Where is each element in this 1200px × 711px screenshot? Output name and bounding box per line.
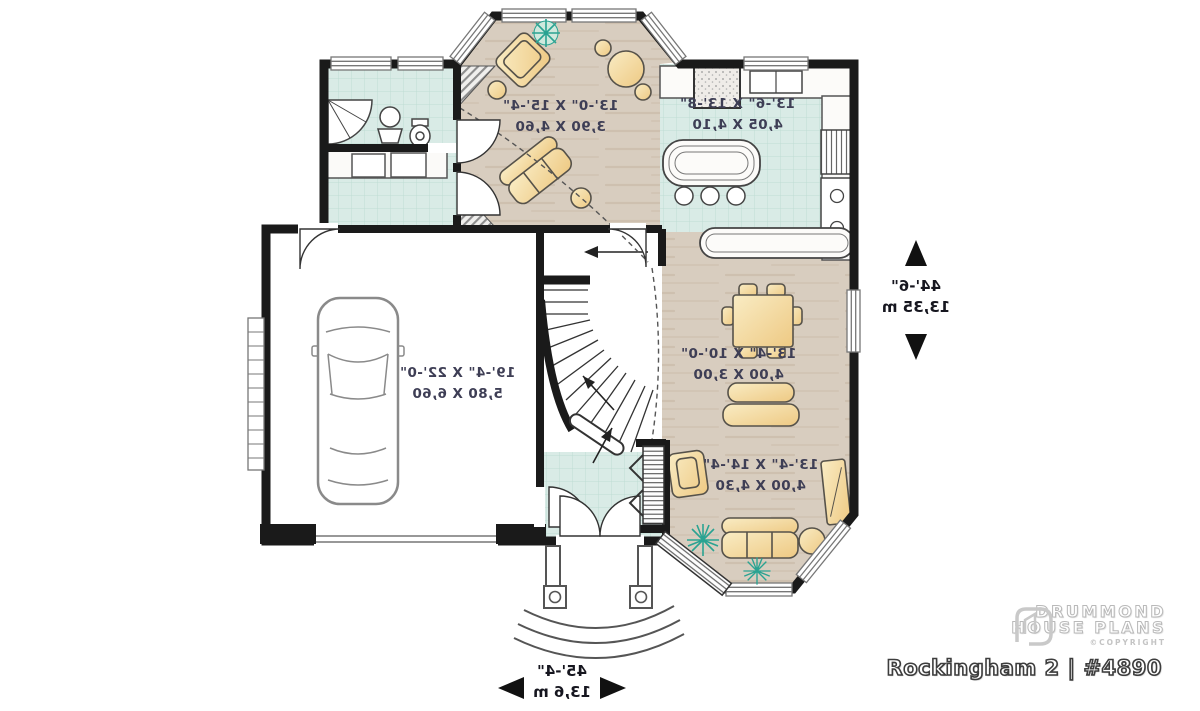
porch-post [544,586,566,608]
porch-step [514,634,684,658]
dryer [391,153,426,177]
porch-rail-left [546,546,560,588]
width-imperial: 45'-4" [492,661,632,682]
window [398,57,443,70]
round-table [608,51,644,87]
living-room-imperial: 13'-4" X 14'-4" [678,455,843,476]
depth-imperial: 44'-6" [846,276,986,297]
porch-step [518,620,680,643]
side-stoop [248,318,264,470]
living-room-metric: 4,00 X 4,30 [678,476,843,497]
family-room-imperial: 13'-0" X 15'-4" [478,96,643,117]
stool [675,187,693,205]
arrow-down-icon [905,334,927,360]
garage-label: 19'-4" X 22'-0" 5,80 X 6,60 [375,363,540,405]
sofa-back [728,383,794,402]
dining-table [733,295,793,347]
drummond-logo-icon [1011,604,1055,650]
breakfast-bar [700,228,854,258]
sofa-seat [723,404,799,426]
laundry-counter [327,151,447,178]
sink [380,107,400,127]
porch-post [630,586,652,608]
stool [727,187,745,205]
garage-metric: 5,80 X 6,60 [375,384,540,405]
arrow-up-icon [905,240,927,266]
dining-room-label: 13'-4" X 10'-0" 4,00 X 3,00 [656,344,821,386]
living-room-label: 13'-4" X 14'-4" 4,00 X 4,30 [678,455,843,497]
garage-imperial: 19'-4" X 22'-0" [375,363,540,384]
ottoman [571,188,591,208]
plant-icon [532,19,560,47]
kitchen-imperial: 13'-6" X 13'-8" [655,94,820,115]
window [502,9,566,22]
toilet [410,125,430,147]
floor-plan-page: 13'-0" X 15'-4" 3,90 X 4,60 13'-6" X 13'… [0,0,1200,711]
family-room-metric: 3,90 X 4,60 [478,117,643,138]
width-dimension-label: 45'-4" 13,6 m [492,661,632,703]
porch-step [524,606,674,628]
stool [701,187,719,205]
kitchen-metric: 4,05 X 4,10 [655,115,820,136]
laundry-appliances [327,151,447,178]
plan-title: Rockingham 2 | #4890 [887,656,1162,680]
chair [595,40,611,56]
closet-louver-door [643,446,664,524]
dining-room-metric: 4,00 X 3,00 [656,365,821,386]
kitchen-label: 13'-6" X 13'-8" 4,05 X 4,10 [655,94,820,136]
stair-railing [567,412,626,457]
depth-metric: 13,35 m [846,297,986,318]
window [744,57,808,70]
window [331,57,391,70]
window [726,583,792,596]
depth-dimension-label: 44'-6" 13,35 m [846,276,986,318]
sofa [722,518,798,558]
width-metric: 13,6 m [492,682,632,703]
garage-side-door [300,229,340,269]
washer [352,154,385,177]
family-room-label: 13'-0" X 15'-4" 3,90 X 4,60 [478,96,643,138]
hall-door [608,229,646,267]
refrigerator [821,130,854,174]
drummond-logo: DRUMMOND HOUSE PLANS ©COPYRIGHT [1011,604,1166,646]
porch-rail-right [638,546,652,588]
window [572,9,636,22]
porch [514,546,684,658]
dining-room-imperial: 13'-4" X 10'-0" [656,344,821,365]
